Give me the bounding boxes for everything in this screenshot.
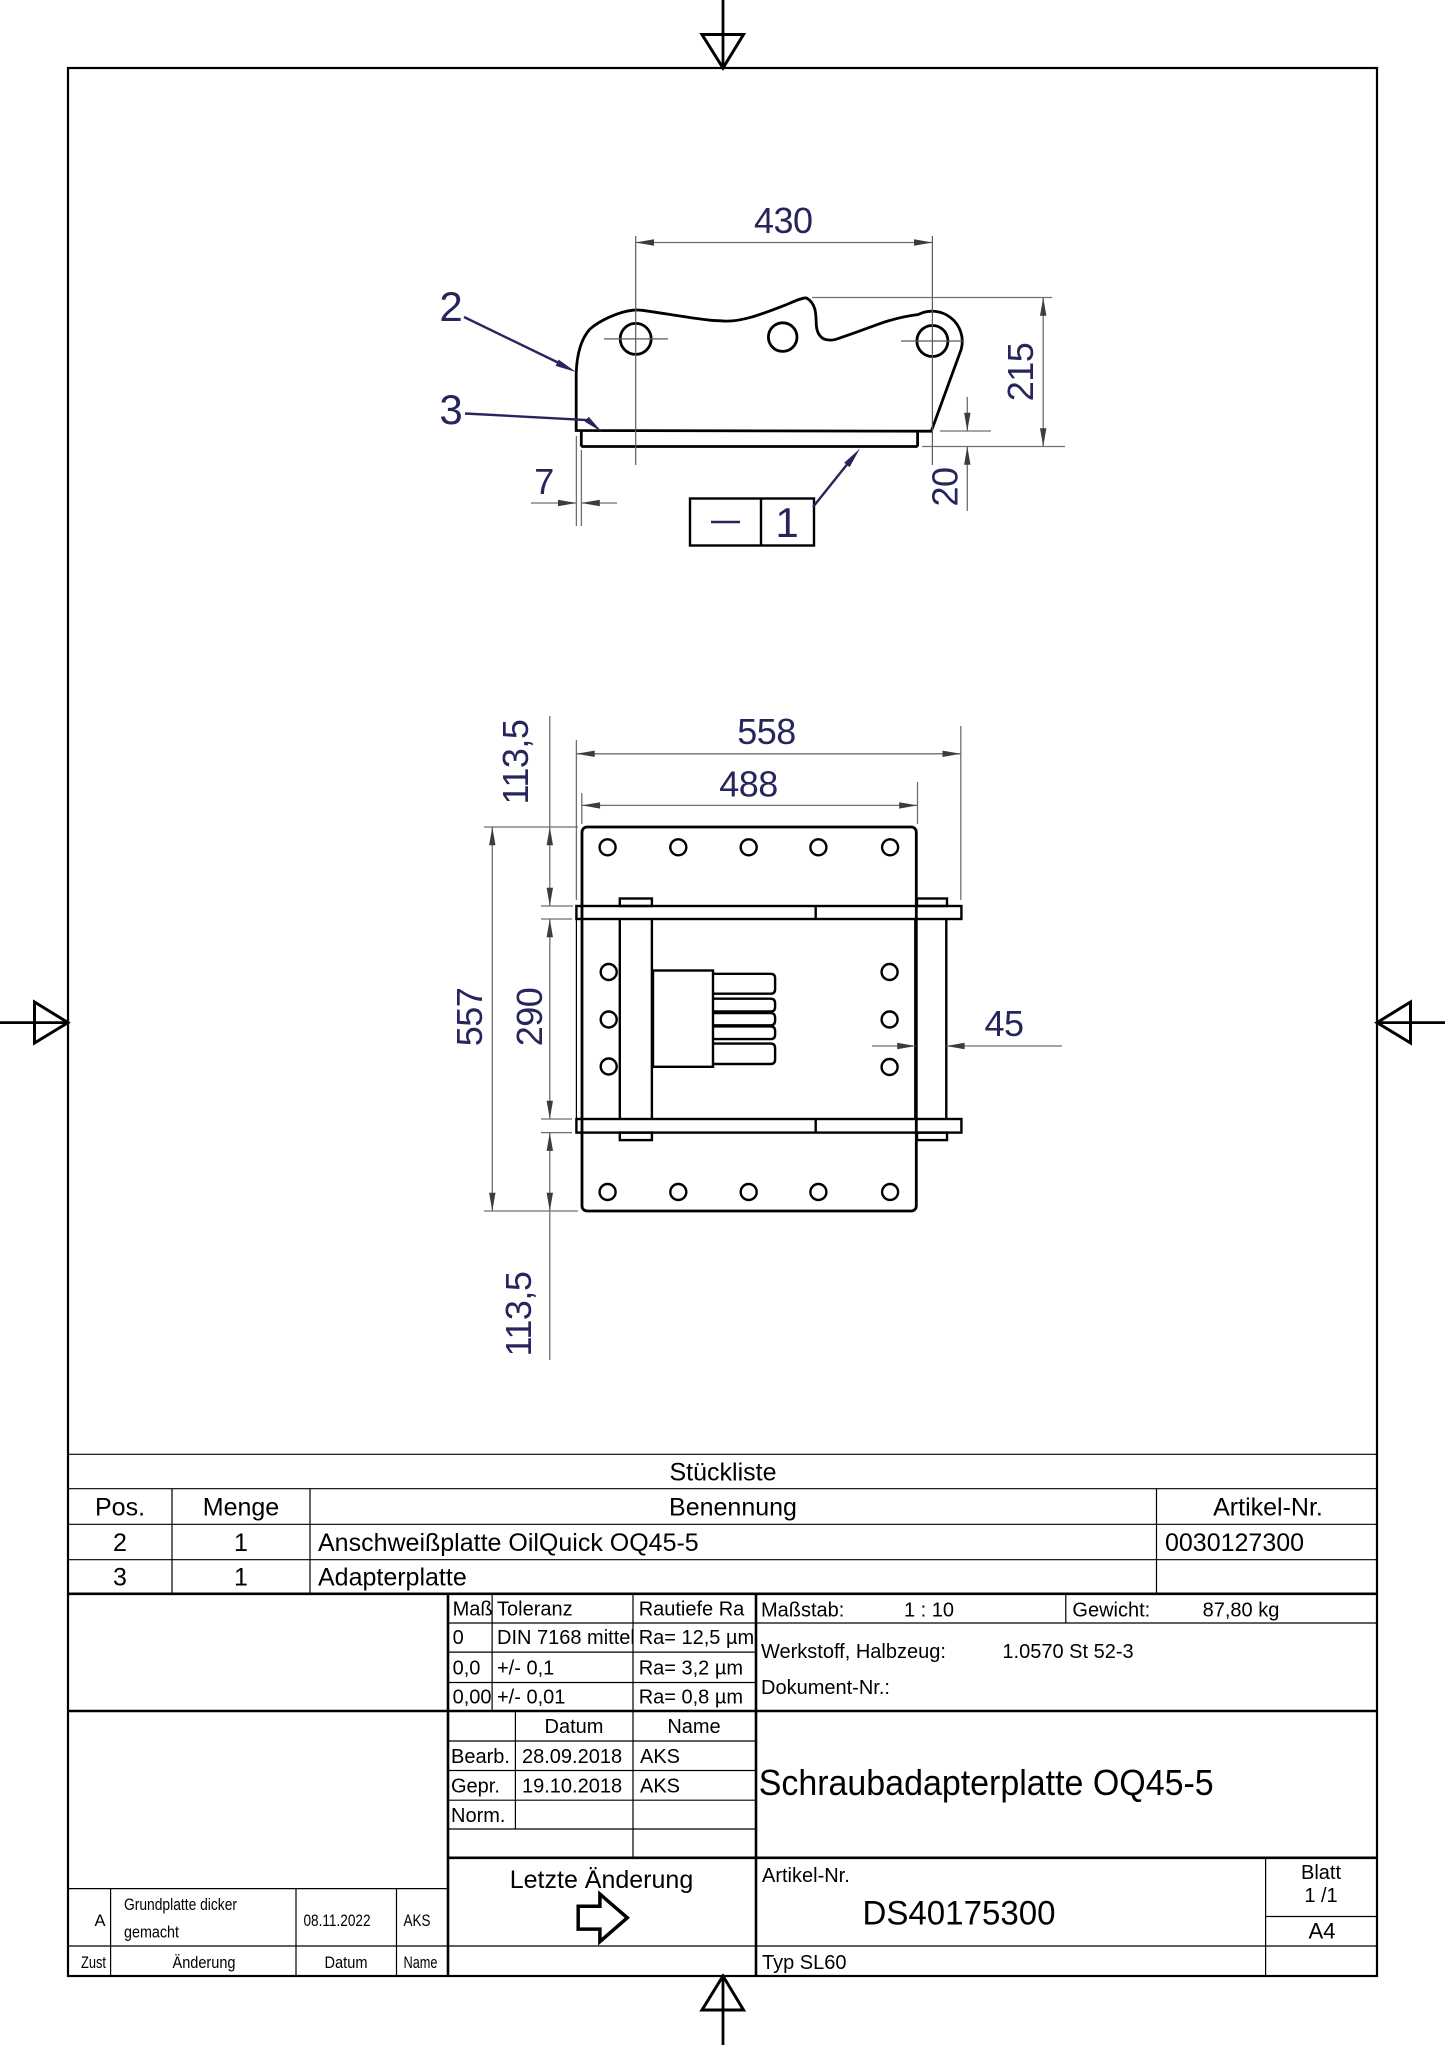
svg-text:AKS: AKS <box>640 1776 680 1798</box>
svg-text:Dokument-Nr.:: Dokument-Nr.: <box>761 1677 890 1699</box>
svg-text:20: 20 <box>925 467 966 506</box>
svg-text:+/- 0,1: +/- 0,1 <box>497 1657 554 1679</box>
svg-text:Bearb.: Bearb. <box>451 1746 510 1768</box>
svg-text:A4: A4 <box>1309 1919 1336 1944</box>
svg-text:DS40175300: DS40175300 <box>863 1895 1056 1933</box>
svg-text:A: A <box>94 1912 105 1930</box>
svg-text:Zust: Zust <box>81 1954 106 1972</box>
svg-text:7: 7 <box>534 461 554 502</box>
svg-text:DIN 7168 mittel: DIN 7168 mittel <box>497 1627 635 1649</box>
svg-text:0: 0 <box>453 1627 464 1649</box>
svg-text:1 : 10: 1 : 10 <box>904 1600 954 1622</box>
svg-text:558: 558 <box>737 711 796 752</box>
svg-text:Name: Name <box>667 1716 720 1738</box>
svg-text:3: 3 <box>439 386 462 433</box>
svg-text:+/- 0,01: +/- 0,01 <box>497 1687 565 1709</box>
svg-text:Letzte Änderung: Letzte Änderung <box>510 1866 693 1894</box>
svg-text:488: 488 <box>719 764 778 805</box>
svg-text:2: 2 <box>113 1529 127 1557</box>
svg-text:Gepr.: Gepr. <box>451 1776 500 1798</box>
svg-text:AKS: AKS <box>404 1912 431 1930</box>
svg-text:0030127300: 0030127300 <box>1165 1529 1304 1557</box>
svg-text:Toleranz: Toleranz <box>497 1599 573 1621</box>
svg-text:87,80 kg: 87,80 kg <box>1203 1600 1280 1622</box>
svg-text:Pos.: Pos. <box>95 1494 145 1522</box>
svg-text:Ra= 0,8 µm: Ra= 0,8 µm <box>639 1687 743 1709</box>
svg-text:3: 3 <box>113 1564 127 1592</box>
svg-text:Datum: Datum <box>325 1954 368 1972</box>
svg-text:Maß: Maß <box>453 1599 493 1621</box>
svg-text:Stückliste: Stückliste <box>670 1459 777 1487</box>
svg-text:Artikel-Nr.: Artikel-Nr. <box>1213 1494 1323 1522</box>
svg-text:Schraubadapterplatte OQ45-5: Schraubadapterplatte OQ45-5 <box>759 1762 1214 1803</box>
svg-text:Menge: Menge <box>203 1494 279 1522</box>
svg-text:Rautiefe Ra: Rautiefe Ra <box>639 1599 745 1621</box>
svg-text:Name: Name <box>404 1954 438 1972</box>
svg-text:Maßstab:: Maßstab: <box>761 1600 844 1622</box>
svg-text:gemacht: gemacht <box>124 1924 179 1942</box>
svg-text:Anschweißplatte OilQuick OQ45-: Anschweißplatte OilQuick OQ45-5 <box>318 1529 699 1557</box>
svg-text:1 /1: 1 /1 <box>1304 1885 1337 1907</box>
svg-text:1: 1 <box>775 499 798 546</box>
svg-text:AKS: AKS <box>640 1746 680 1768</box>
svg-text:Artikel-Nr.: Artikel-Nr. <box>762 1865 850 1887</box>
svg-text:113,5: 113,5 <box>498 1272 539 1357</box>
svg-text:2: 2 <box>439 283 462 330</box>
svg-text:Werkstoff, Halbzeug:: Werkstoff, Halbzeug: <box>761 1641 946 1663</box>
svg-text:Änderung: Änderung <box>173 1954 236 1972</box>
svg-text:19.10.2018: 19.10.2018 <box>522 1776 622 1798</box>
svg-text:Grundplatte dicker: Grundplatte dicker <box>124 1896 237 1914</box>
svg-text:113,5: 113,5 <box>495 720 536 805</box>
svg-text:Ra= 12,5 µm: Ra= 12,5 µm <box>639 1627 754 1649</box>
svg-text:Blatt: Blatt <box>1301 1862 1341 1884</box>
svg-text:Datum: Datum <box>545 1716 604 1738</box>
svg-text:Adapterplatte: Adapterplatte <box>318 1564 467 1592</box>
svg-text:430: 430 <box>754 200 813 241</box>
svg-text:45: 45 <box>984 1003 1023 1044</box>
svg-text:0,0: 0,0 <box>453 1657 481 1679</box>
svg-text:08.11.2022: 08.11.2022 <box>304 1912 371 1930</box>
svg-text:1: 1 <box>234 1564 248 1592</box>
svg-text:0,00: 0,00 <box>453 1687 492 1709</box>
svg-text:1.0570 St 52-3: 1.0570 St 52-3 <box>1002 1641 1133 1663</box>
svg-text:1: 1 <box>234 1529 248 1557</box>
svg-text:28.09.2018: 28.09.2018 <box>522 1746 622 1768</box>
svg-text:Typ SL60: Typ SL60 <box>762 1952 847 1974</box>
svg-text:215: 215 <box>1000 343 1041 402</box>
svg-text:557: 557 <box>449 988 490 1047</box>
svg-text:Benennung: Benennung <box>669 1494 797 1522</box>
svg-text:290: 290 <box>509 988 550 1047</box>
svg-text:Norm.: Norm. <box>451 1805 505 1827</box>
svg-text:Gewicht:: Gewicht: <box>1072 1600 1150 1622</box>
svg-text:Ra= 3,2 µm: Ra= 3,2 µm <box>639 1657 743 1679</box>
